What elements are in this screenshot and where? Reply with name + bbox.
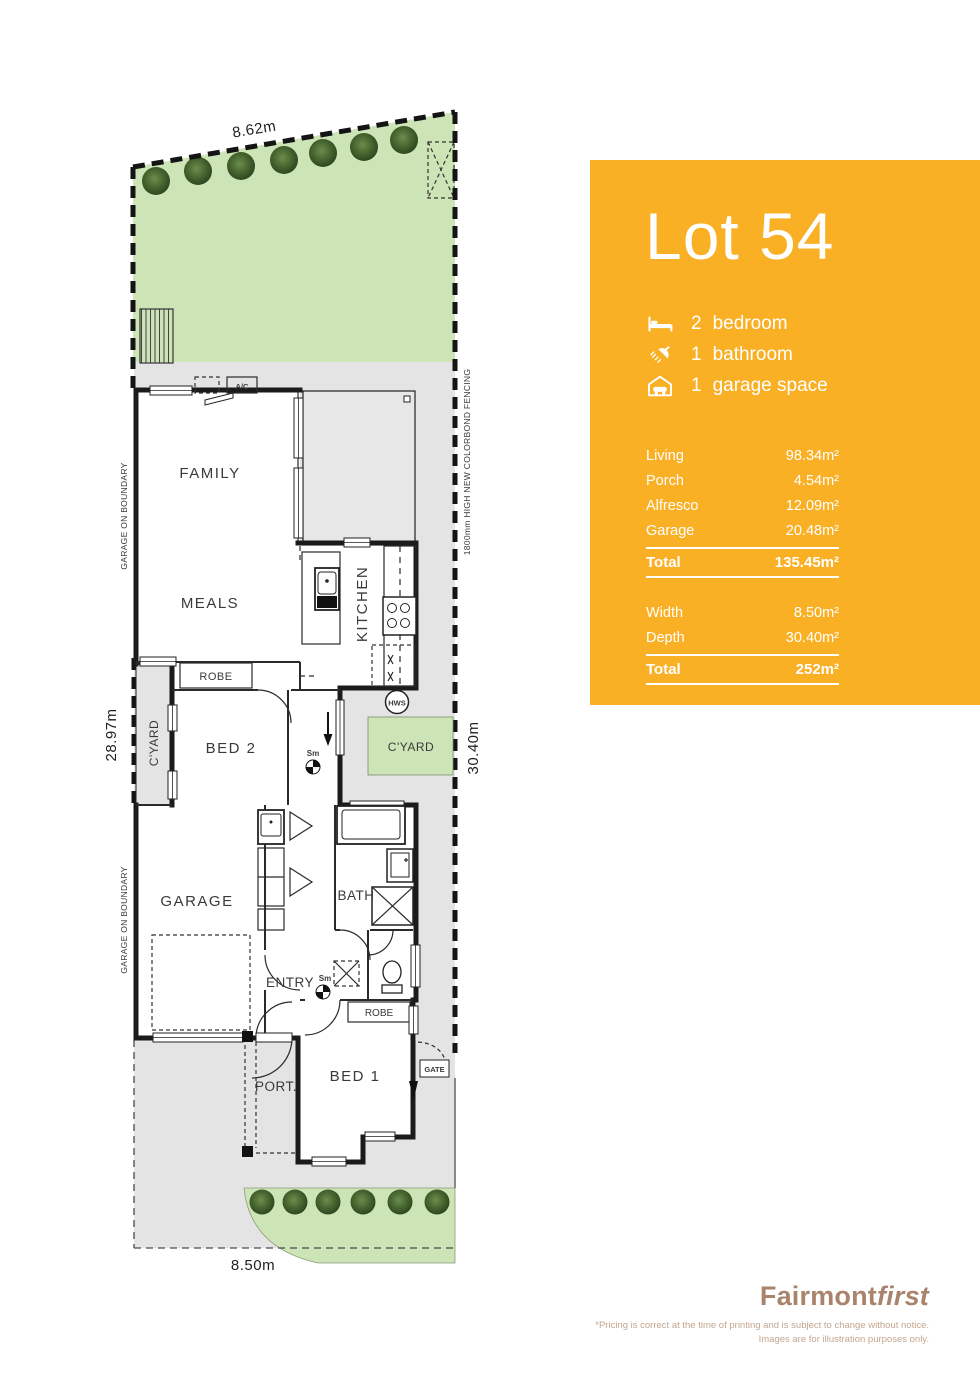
- porch-post: [242, 1031, 253, 1042]
- shower-icon: [645, 344, 675, 366]
- feature-bathrooms: 1 bathroom: [645, 339, 828, 370]
- room-label-garage: GARAGE: [160, 893, 233, 910]
- feature-label: bedroom: [713, 313, 788, 335]
- room-label-bed2: BED 2: [206, 740, 257, 757]
- alfresco-area: [303, 391, 415, 543]
- tree-icon: [250, 1190, 275, 1215]
- feature-count: 1: [691, 344, 702, 366]
- dimension-total-row: Total 252m²: [646, 654, 839, 685]
- disclaimer-line: Images are for illustration purposes onl…: [595, 1333, 929, 1347]
- table-row: Width 8.50m²: [646, 600, 839, 625]
- room-label-bed1: BED 1: [330, 1068, 381, 1085]
- brand-name-italic: first: [877, 1281, 929, 1311]
- brochure-page: A/C: [0, 0, 980, 1391]
- room-label-porch: PORT.: [255, 1079, 297, 1094]
- tree-icon: [283, 1190, 308, 1215]
- lot-info-panel: Lot 54 2 bedroom 1: [590, 160, 980, 705]
- tree-icon: [388, 1190, 413, 1215]
- brand-name-bold: Fairmont: [760, 1281, 877, 1311]
- kitchen-sink: [318, 572, 336, 594]
- dimension-right: 30.40m: [465, 721, 482, 774]
- room-label-kitchen: KITCHEN: [354, 566, 371, 642]
- room-label-meals: MEALS: [181, 595, 239, 612]
- row-value: 135.45m²: [775, 554, 839, 571]
- brand-logo: Fairmontfirst: [595, 1281, 929, 1312]
- disclaimer-line: *Pricing is correct at the time of print…: [595, 1319, 929, 1333]
- table-row: Living 98.34m²: [646, 443, 839, 468]
- feature-garage: 1 garage space: [645, 370, 828, 401]
- tree-icon: [350, 133, 378, 161]
- stove: [383, 597, 416, 635]
- tree-icon: [425, 1190, 450, 1215]
- tree-icon: [227, 152, 255, 180]
- bed-icon: [645, 315, 675, 333]
- row-label: Porch: [646, 473, 684, 489]
- dimension-left: 28.97m: [103, 708, 120, 761]
- table-row: Depth 30.40m²: [646, 625, 839, 650]
- footer: Fairmontfirst *Pricing is correct at the…: [595, 1281, 929, 1348]
- row-value: 30.40m²: [786, 630, 839, 646]
- table-row: Porch 4.54m²: [646, 468, 839, 493]
- row-label: Living: [646, 448, 684, 464]
- row-label: Depth: [646, 630, 685, 646]
- dimension-bottom: 8.50m: [231, 1257, 275, 1274]
- table-row: Alfresco 12.09m²: [646, 493, 839, 518]
- row-label: Total: [646, 554, 681, 571]
- spec-tables: Living 98.34m² Porch 4.54m² Alfresco 12.…: [646, 443, 839, 685]
- ac-label: A/C: [236, 382, 250, 391]
- row-label: Width: [646, 605, 683, 621]
- tree-icon: [390, 126, 418, 154]
- deck-hatch: [140, 309, 173, 363]
- row-value: 4.54m²: [794, 473, 839, 489]
- row-value: 8.50m²: [794, 605, 839, 621]
- feature-count: 1: [691, 375, 702, 397]
- room-label-bath: BATH: [337, 888, 374, 903]
- svg-text:Sm: Sm: [307, 749, 319, 758]
- room-label-robe2: ROBE: [199, 671, 232, 683]
- feature-label: bathroom: [713, 344, 793, 366]
- hws-label: HWS: [388, 699, 406, 708]
- toilet-icon: [382, 961, 402, 993]
- note-fence: 1800mm HIGH NEW COLORBOND FENCING: [462, 369, 472, 556]
- porch-post: [242, 1146, 253, 1157]
- area-table: Living 98.34m² Porch 4.54m² Alfresco 12.…: [646, 443, 839, 578]
- room-label-robe1: ROBE: [365, 1008, 394, 1019]
- row-value: 12.09m²: [786, 498, 839, 514]
- row-value: 98.34m²: [786, 448, 839, 464]
- room-label-family: FAMILY: [179, 465, 240, 482]
- tree-icon: [184, 157, 212, 185]
- row-value: 20.48m²: [786, 523, 839, 539]
- note-garage-boundary-upper: GARAGE ON BOUNDARY: [119, 462, 129, 569]
- smoke-detector: Sm: [306, 749, 320, 774]
- tree-icon: [270, 146, 298, 174]
- disclaimer: *Pricing is correct at the time of print…: [595, 1319, 929, 1348]
- room-label-cyard-left: C'YARD: [147, 720, 161, 766]
- feature-list: 2 bedroom 1 bathroom: [645, 308, 828, 401]
- garage-icon: [645, 375, 675, 397]
- note-garage-boundary-lower: GARAGE ON BOUNDARY: [119, 866, 129, 973]
- table-row: Garage 20.48m²: [646, 518, 839, 543]
- row-label: Total: [646, 661, 681, 678]
- dimension-top: 8.62m: [231, 118, 277, 142]
- tree-icon: [142, 167, 170, 195]
- row-label: Alfresco: [646, 498, 698, 514]
- area-total-row: Total 135.45m²: [646, 547, 839, 578]
- tree-icon: [309, 139, 337, 167]
- feature-label: garage space: [713, 375, 828, 397]
- room-label-cyard-right: C'YARD: [388, 740, 434, 754]
- gate-label: GATE: [424, 1065, 444, 1074]
- tree-icon: [351, 1190, 376, 1215]
- dimension-table: Width 8.50m² Depth 30.40m² Total 252m²: [646, 600, 839, 685]
- tree-icon: [316, 1190, 341, 1215]
- lot-title: Lot 54: [645, 198, 835, 274]
- feature-count: 2: [691, 313, 702, 335]
- row-value: 252m²: [796, 661, 839, 678]
- room-label-entry: ENTRY: [266, 975, 314, 990]
- row-label: Garage: [646, 523, 694, 539]
- svg-text:Sm: Sm: [319, 974, 331, 983]
- feature-bedrooms: 2 bedroom: [645, 308, 828, 339]
